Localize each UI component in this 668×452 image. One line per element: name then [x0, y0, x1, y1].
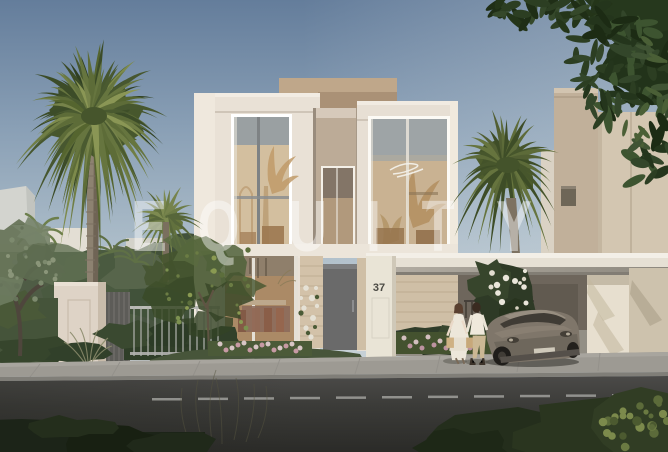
svg-text:U: U [288, 187, 327, 267]
svg-text:T: T [422, 187, 455, 267]
svg-text:I: I [366, 187, 381, 267]
svg-text:Q: Q [197, 187, 239, 267]
svg-text:E: E [131, 187, 167, 267]
svg-text:37: 37 [373, 282, 385, 294]
svg-text:Y: Y [496, 187, 532, 267]
